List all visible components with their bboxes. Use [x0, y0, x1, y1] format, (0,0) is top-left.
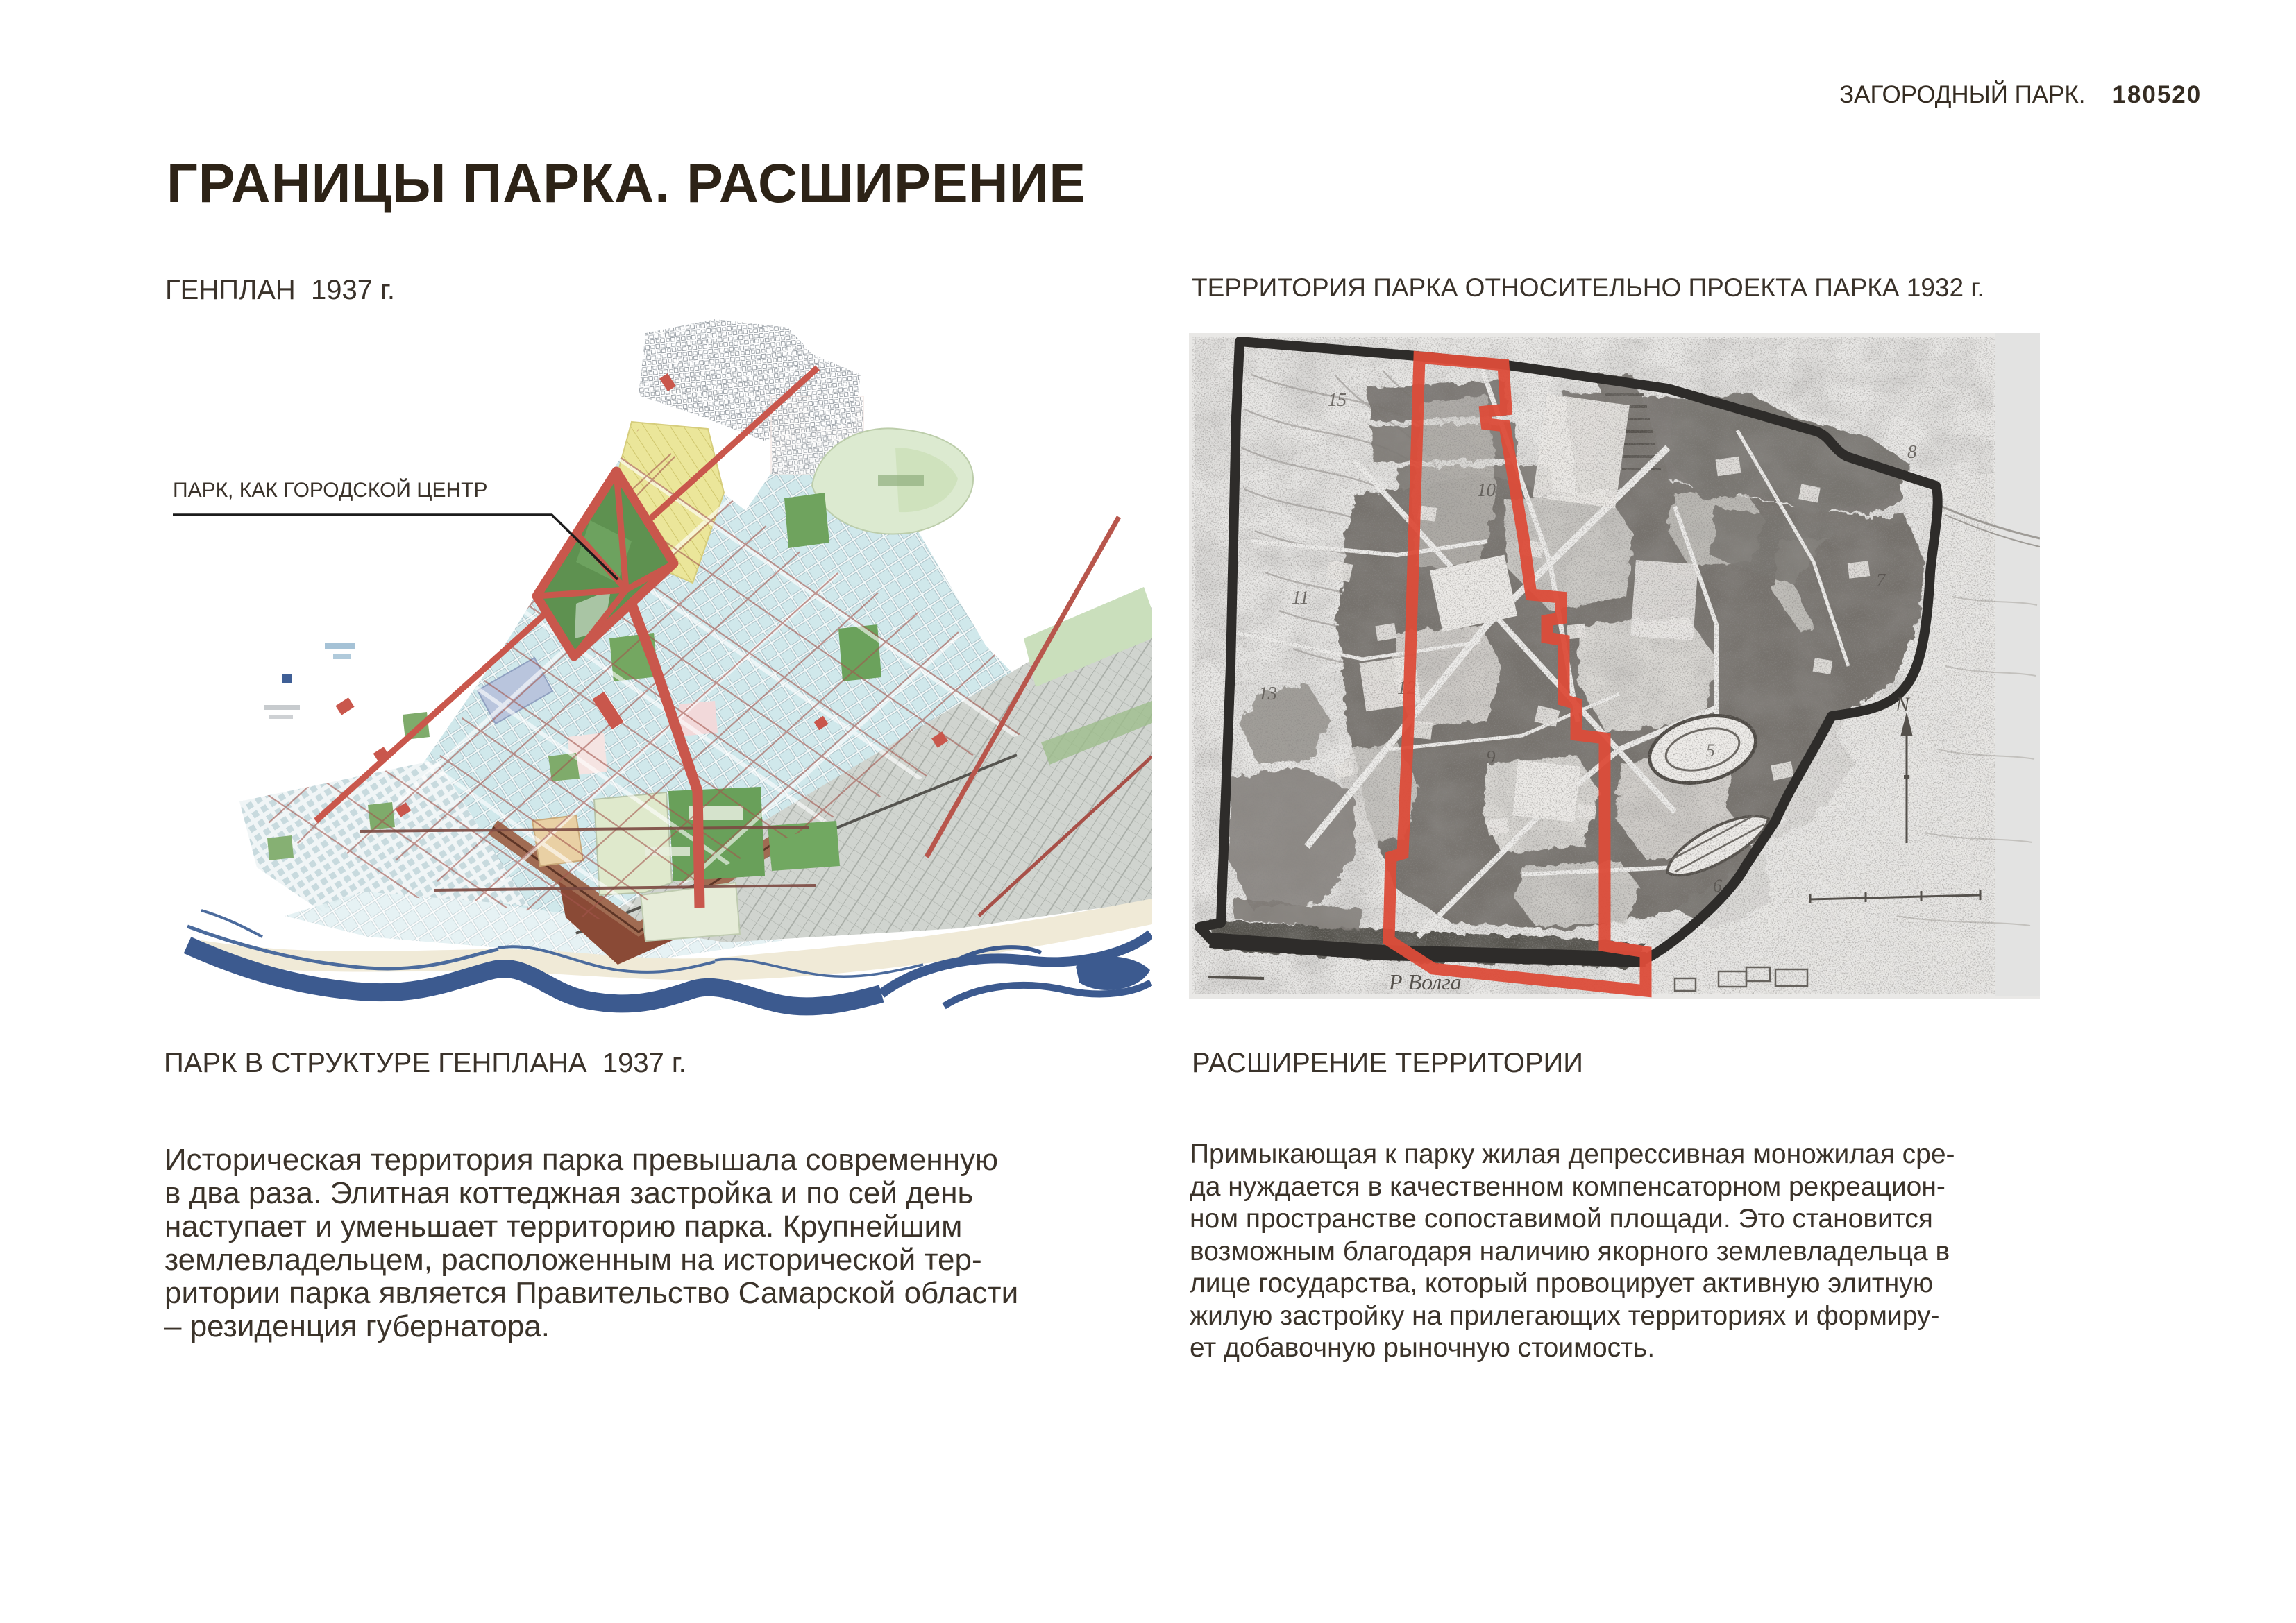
svg-text:Р Волга: Р Волга	[1388, 969, 1462, 994]
svg-text:N: N	[1895, 693, 1911, 716]
